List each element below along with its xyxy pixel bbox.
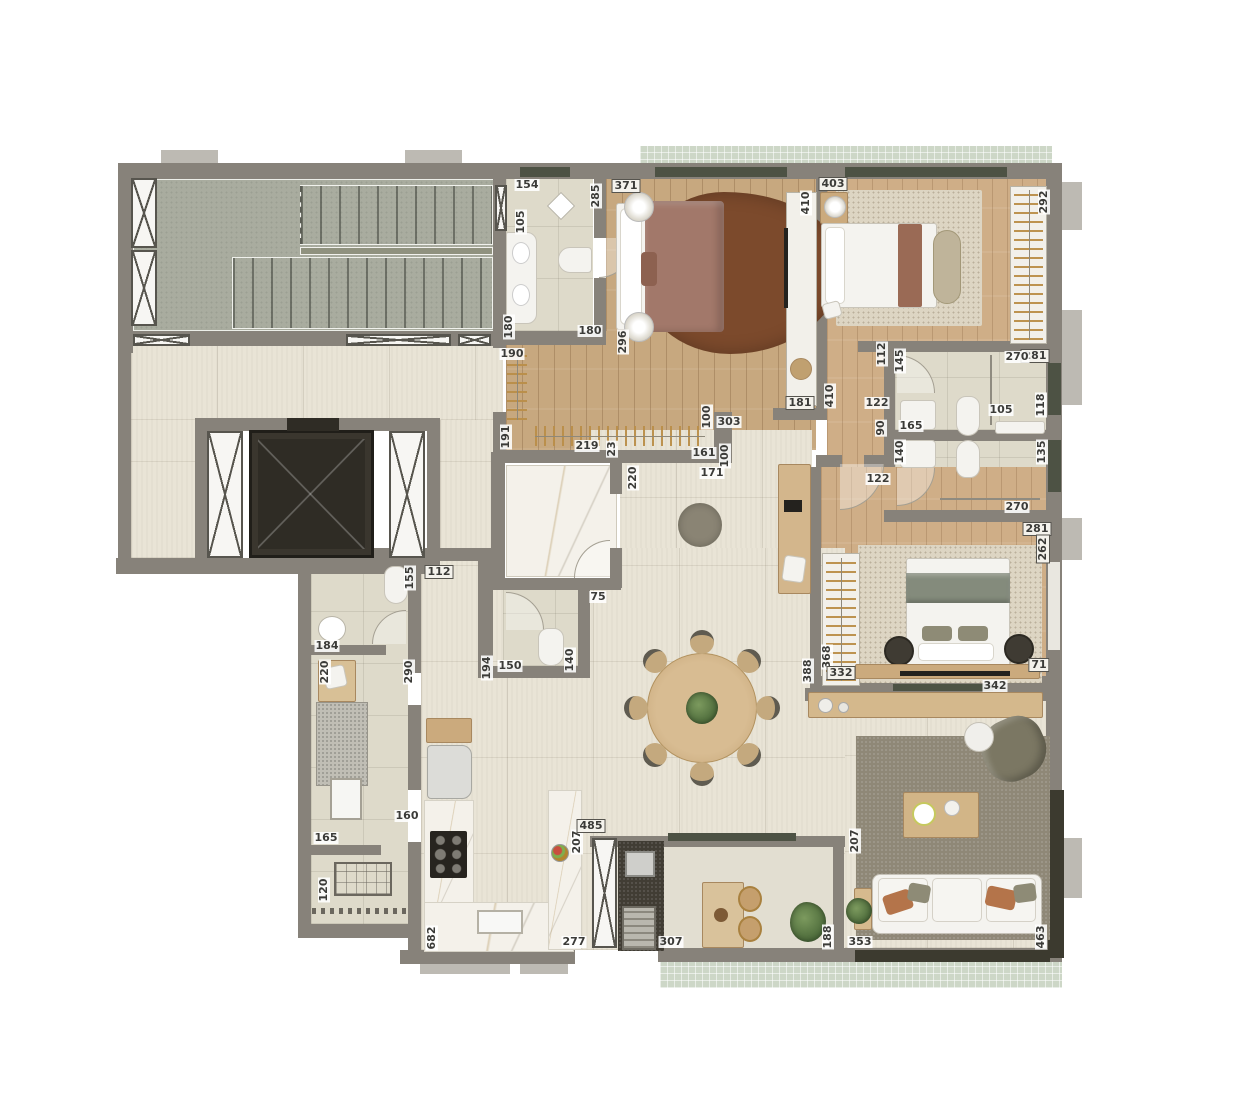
dim-label: 160 (395, 810, 420, 822)
dim-label: 220 (319, 660, 331, 685)
dim-label: 154 (515, 179, 540, 191)
dim-label: 388 (802, 659, 814, 684)
dim-label: 194 (481, 656, 493, 681)
dim-label: 118 (1035, 393, 1047, 418)
dim-label: 112 (425, 565, 454, 579)
dim-label: 71 (1028, 658, 1049, 672)
dim-label: 100 (701, 405, 713, 430)
dim-label: 171 (700, 467, 725, 479)
dim-label: 410 (800, 191, 812, 216)
dim-label: 120 (318, 878, 330, 903)
dim-label: 207 (571, 830, 583, 855)
dim-label: 296 (617, 330, 629, 355)
dim-label: 140 (894, 440, 906, 465)
dim-label: 285 (590, 184, 602, 209)
dim-label: 220 (627, 466, 639, 491)
dim-label: 122 (865, 397, 890, 409)
dim-label: 105 (989, 404, 1014, 416)
labels-layer: 1542851051801803712964101811901912192316… (0, 0, 1242, 1104)
dim-label: 180 (578, 325, 603, 337)
dim-label: 219 (575, 440, 600, 452)
dim-label: 190 (500, 348, 525, 360)
dim-label: 353 (848, 936, 873, 948)
dim-label: 105 (515, 210, 527, 235)
dim-label: 165 (899, 420, 924, 432)
dim-label: 90 (875, 419, 887, 436)
dim-label: 207 (849, 829, 861, 854)
dim-label: 485 (577, 819, 606, 833)
dim-label: 403 (819, 177, 848, 191)
dim-label: 463 (1035, 925, 1047, 950)
dim-label: 277 (562, 936, 587, 948)
floor-plan: 1542851051801803712964101811901912192316… (0, 0, 1242, 1104)
dim-label: 191 (500, 425, 512, 450)
dim-label: 155 (404, 566, 416, 591)
dim-label: 270 (1005, 351, 1030, 363)
dim-label: 410 (824, 384, 836, 409)
dim-label: 332 (827, 666, 856, 680)
dim-label: 342 (983, 680, 1008, 692)
dim-label: 184 (315, 640, 340, 652)
dim-label: 75 (589, 591, 606, 603)
dim-label: 188 (822, 925, 834, 950)
dim-label: 181 (786, 396, 815, 410)
dim-label: 135 (1036, 440, 1048, 465)
dim-label: 112 (876, 342, 888, 367)
dim-label: 292 (1038, 190, 1050, 215)
dim-label: 150 (498, 660, 523, 672)
dim-label: 682 (426, 926, 438, 951)
dim-label: 307 (659, 936, 684, 948)
dim-label: 270 (1005, 501, 1030, 513)
dim-label: 122 (866, 473, 891, 485)
dim-label: 161 (692, 447, 717, 459)
dim-label: 290 (403, 660, 415, 685)
dim-label: 140 (564, 648, 576, 673)
dim-label: 165 (314, 832, 339, 844)
dim-label: 303 (717, 416, 742, 428)
dim-label: 180 (503, 315, 515, 340)
dim-label: 23 (606, 440, 618, 457)
dim-label: 100 (719, 444, 731, 469)
dim-label: 262 (1036, 535, 1050, 564)
dim-label: 145 (894, 349, 906, 374)
dim-label: 371 (612, 179, 641, 193)
